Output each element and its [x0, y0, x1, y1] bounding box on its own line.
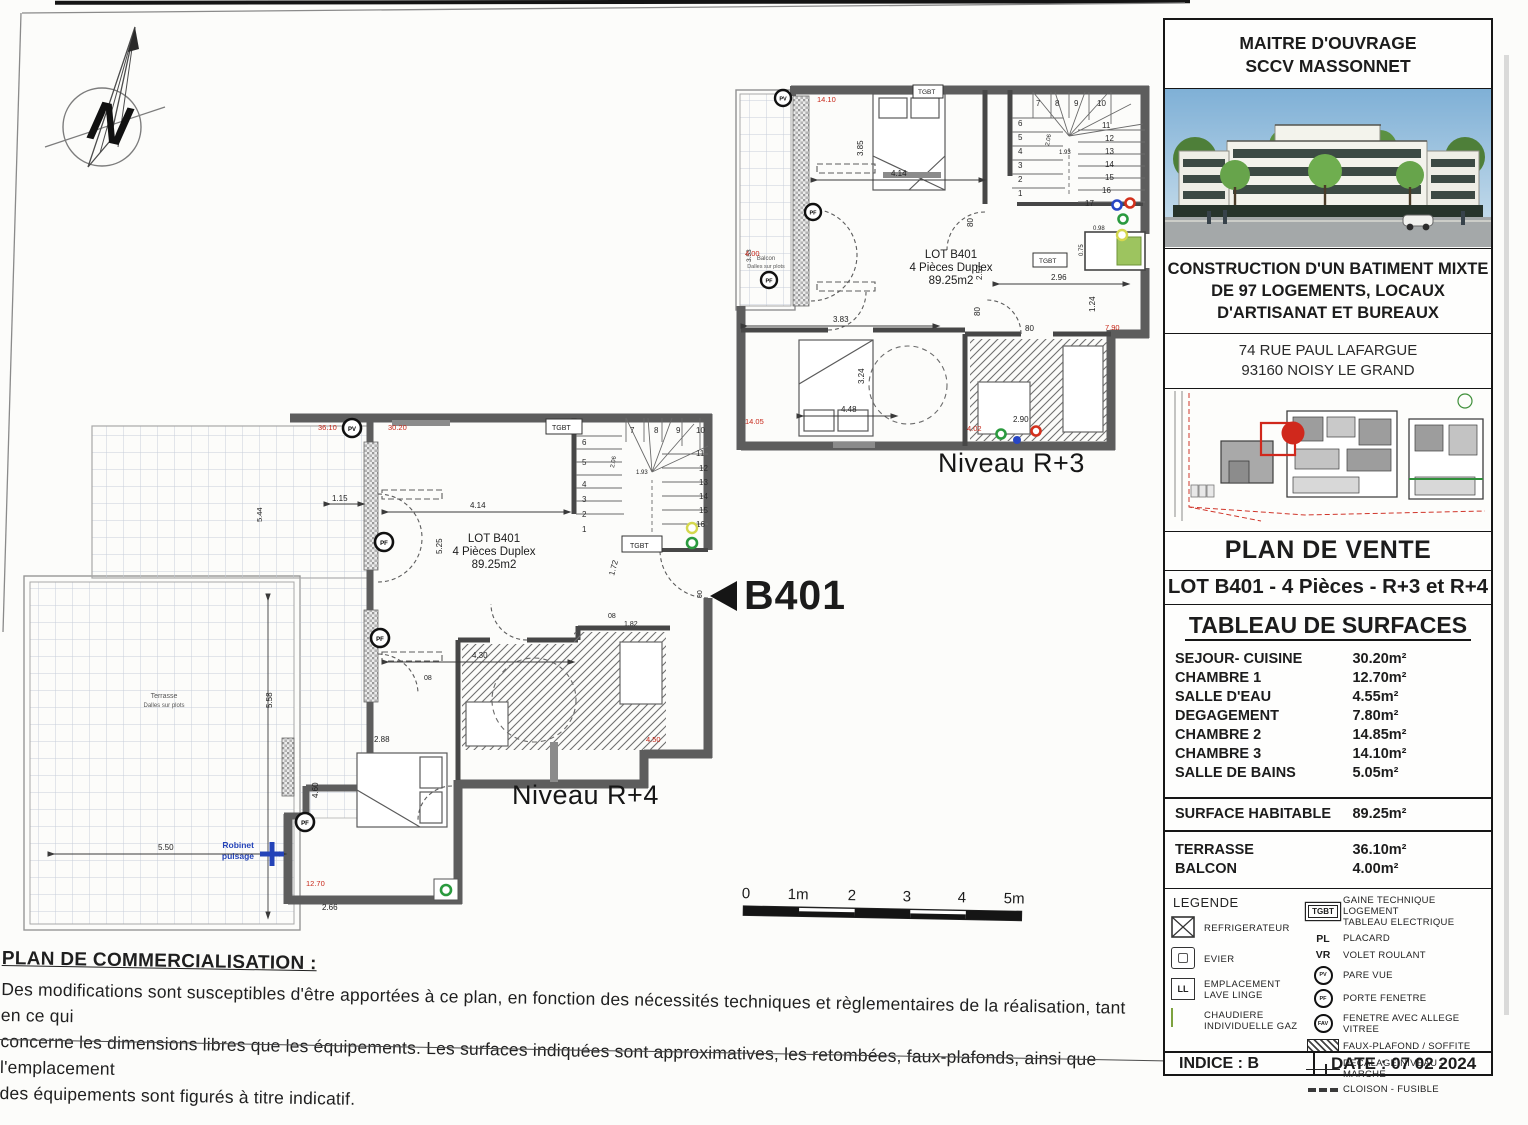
plan-de-vente-sheet: { "page": { "niveau_r3": "Niveau R+3", "… — [0, 0, 1528, 1080]
svg-text:08: 08 — [608, 613, 616, 620]
svg-text:12: 12 — [699, 464, 708, 473]
window-band — [793, 96, 809, 306]
svg-text:9: 9 — [1074, 99, 1079, 108]
svg-text:Dalles sur plots: Dalles sur plots — [747, 264, 785, 270]
svg-text:13: 13 — [699, 478, 708, 487]
svg-text:PV: PV — [779, 97, 787, 103]
svg-text:4: 4 — [1018, 147, 1023, 156]
legend-item-volet-roulant: VR VOLET ROULANT — [1303, 949, 1485, 961]
svg-text:14: 14 — [1105, 160, 1114, 169]
lot-highlight-dot — [1282, 422, 1305, 445]
svg-text:8: 8 — [654, 426, 659, 435]
table-row: CHAMBRE 112.70m² — [1175, 669, 1481, 688]
svg-text:4.14: 4.14 — [470, 501, 486, 510]
table-row: BALCON4.00m² — [1175, 860, 1481, 879]
svg-text:1.72: 1.72 — [607, 559, 620, 577]
table-row: SALLE D'EAU4.55m² — [1175, 688, 1481, 707]
svg-text:4.02: 4.02 — [967, 424, 982, 433]
legend: LEGENDE REFRIGERATEUR EVIER LL EMPLACEME… — [1165, 888, 1491, 1051]
svg-text:17: 17 — [1085, 199, 1094, 208]
tgbt-label: TGBT — [552, 425, 571, 432]
svg-text:7: 7 — [1036, 99, 1041, 108]
legend-item-evier: EVIER — [1171, 947, 1299, 971]
dash-symbol-icon — [1308, 1088, 1338, 1092]
tgbt-icon: TGBT — [1308, 905, 1338, 918]
svg-text:1m: 1m — [788, 886, 809, 903]
svg-text:15: 15 — [699, 506, 708, 515]
svg-text:5: 5 — [582, 458, 587, 467]
legend-item-cloison: CLOISON - FUSIBLE — [1303, 1084, 1485, 1095]
svg-text:1.24: 1.24 — [1088, 296, 1097, 312]
svg-text:80: 80 — [966, 218, 975, 227]
svg-text:14.10: 14.10 — [817, 95, 836, 104]
svg-text:PF: PF — [765, 279, 773, 285]
svg-text:80: 80 — [1025, 324, 1034, 333]
table-row: SALLE DE BAINS5.05m² — [1175, 764, 1481, 783]
svg-text:4 Pièces Duplex: 4 Pièces Duplex — [452, 546, 535, 558]
svg-text:4.14: 4.14 — [891, 169, 907, 178]
svg-text:1: 1 — [582, 525, 587, 534]
niveau-r3-label: Niveau R+3 — [938, 448, 1085, 479]
svg-text:12.70: 12.70 — [306, 879, 325, 888]
svg-text:16: 16 — [1102, 186, 1111, 195]
svg-text:2.57: 2.57 — [975, 264, 984, 280]
svg-text:14: 14 — [699, 492, 708, 501]
svg-text:1.82: 1.82 — [624, 621, 638, 628]
window-band — [364, 610, 378, 702]
svg-text:6: 6 — [582, 438, 587, 447]
commercialisation-note: PLAN DE COMMERCIALISATION : Des modifica… — [0, 948, 1142, 1125]
table-row: CHAMBRE 214.85m² — [1175, 726, 1481, 745]
svg-text:1.93: 1.93 — [636, 470, 648, 476]
surface-table-title: TABLEAU DE SURFACES — [1185, 612, 1471, 641]
svg-text:4.00: 4.00 — [745, 249, 760, 258]
tgbt-label: TGBT — [1039, 258, 1056, 265]
stair-numbers-r4: 12 34 56 78 910 1112 1314 1516 — [582, 426, 708, 534]
building-center — [1287, 411, 1397, 497]
svg-text:4: 4 — [958, 889, 967, 906]
boiler-icon — [1171, 1008, 1173, 1027]
svg-text:0.75: 0.75 — [1079, 244, 1085, 256]
unit-marker-label: B401 — [744, 572, 846, 619]
table-row: CHAMBRE 314.10m² — [1175, 745, 1481, 764]
tgbt-label: TGBT — [630, 543, 649, 550]
north-letter: N — [83, 88, 138, 159]
legend-item-refrigerateur: REFRIGERATEUR — [1171, 916, 1299, 940]
scale-labels: 0 1m 2 3 4 5m — [742, 885, 1025, 907]
svg-text:3: 3 — [1018, 161, 1023, 170]
svg-text:80: 80 — [973, 307, 982, 316]
bed-chambre3 — [799, 340, 873, 436]
project-line3: D'ARTISANAT ET BUREAUX — [1167, 302, 1489, 324]
svg-text:5.25: 5.25 — [435, 538, 444, 554]
svg-text:LOT B401: LOT B401 — [925, 249, 977, 261]
date-cell: DATE : 07 02 2024 — [1315, 1054, 1491, 1074]
bathtub — [620, 642, 662, 704]
svg-text:PF: PF — [376, 637, 384, 643]
svg-text:7: 7 — [630, 426, 635, 435]
svg-text:9: 9 — [676, 426, 681, 435]
svg-text:Dalles sur plots: Dalles sur plots — [143, 703, 184, 709]
svg-text:89.25m2: 89.25m2 — [472, 559, 517, 571]
svg-text:5.50: 5.50 — [158, 843, 174, 852]
svg-text:2: 2 — [582, 510, 587, 519]
svg-text:12: 12 — [1105, 134, 1114, 143]
north-compass-icon: N — [38, 20, 173, 185]
surface-table-header: TABLEAU DE SURFACES — [1165, 605, 1491, 642]
floor-plan-r3: 12 34 56 78 910 1112 1314 1516 17 TGBT T… — [733, 84, 1163, 459]
bed-chambre1 — [357, 753, 447, 827]
boiler-gaz — [1117, 237, 1141, 265]
svg-text:1: 1 — [1018, 189, 1023, 198]
svg-text:90: 90 — [697, 590, 704, 598]
hedge — [1173, 205, 1483, 217]
surface-table: SEJOUR- CUISINE30.20m² CHAMBRE 112.70m² … — [1165, 642, 1491, 787]
table-row: TERRASSE36.10m² — [1175, 841, 1481, 860]
svg-text:2.96: 2.96 — [1051, 273, 1067, 282]
legend-title: LEGENDE — [1173, 895, 1299, 910]
svg-text:3: 3 — [582, 495, 587, 504]
owner-line1: MAITRE D'OUVRAGE — [1169, 32, 1487, 55]
project-line2: DE 97 LOGEMENTS, LOCAUX — [1167, 280, 1489, 302]
stairs-r3 — [1012, 92, 1145, 202]
legend-item-tgbt: TGBT GAINE TECHNIQUE LOGEMENTTABLEAU ELE… — [1303, 895, 1485, 928]
building-east — [1409, 419, 1483, 499]
floor-plan-r4: 12 34 56 78 910 1112 1314 1516 TGBT TGBT… — [22, 402, 717, 932]
pl-symbol: PL — [1303, 933, 1343, 945]
svg-text:PF: PF — [380, 541, 388, 547]
indice-cell: INDICE : B — [1165, 1053, 1315, 1074]
washer-icon: LL — [1171, 978, 1195, 1000]
svg-text:11: 11 — [1102, 121, 1111, 130]
svg-text:2: 2 — [1018, 175, 1023, 184]
sink-icon — [1171, 947, 1195, 969]
svg-text:3.85: 3.85 — [856, 140, 865, 156]
scale-bar: 0 1m 2 3 4 5m — [735, 882, 1036, 949]
svg-text:LOT B401: LOT B401 — [468, 533, 520, 545]
table-row: SEJOUR- CUISINE30.20m² — [1175, 650, 1481, 669]
svg-text:PV: PV — [348, 427, 356, 433]
svg-text:5m: 5m — [1004, 890, 1025, 907]
svg-text:4: 4 — [582, 480, 587, 489]
refrigerator-icon — [1171, 916, 1197, 940]
parking-strip — [1191, 485, 1214, 497]
svg-text:2.88: 2.88 — [374, 735, 390, 744]
legend-item-lave-linge: LL EMPLACEMENTLAVE LINGE — [1171, 978, 1299, 1002]
svg-text:4.60: 4.60 — [311, 782, 320, 798]
project-description: CONSTRUCTION D'UN BATIMENT MIXTE DE 97 L… — [1165, 249, 1491, 334]
vr-symbol: VR — [1303, 949, 1343, 961]
legend-item-placard: PL PLACARD — [1303, 933, 1485, 945]
svg-text:36.10: 36.10 — [318, 423, 337, 432]
svg-text:6: 6 — [1018, 119, 1023, 128]
shower — [466, 702, 508, 746]
tgbt-label: TGBT — [918, 89, 935, 96]
turning-circle — [869, 346, 947, 424]
svg-text:PF: PF — [809, 211, 817, 217]
shower — [1063, 346, 1103, 432]
pf-icon: PF — [1314, 989, 1333, 1008]
placard-dashes — [817, 164, 875, 291]
svg-text:0: 0 — [742, 885, 751, 902]
placard-dashes — [382, 490, 442, 661]
svg-text:13: 13 — [1105, 147, 1114, 156]
legend-item-pare-vue: PV PARE VUE — [1303, 966, 1485, 985]
surface-habitable-row: SURFACE HABITABLE89.25m² — [1165, 797, 1491, 832]
svg-text:2.06: 2.06 — [1045, 133, 1053, 146]
scan-streak — [1504, 55, 1509, 1015]
project-address: 74 RUE PAUL LAFARGUE 93160 NOISY LE GRAN… — [1165, 334, 1491, 389]
svg-text:PF: PF — [301, 821, 309, 827]
svg-text:11: 11 — [696, 449, 705, 458]
legend-item-fenetre-allege: FAV FENETRE AVEC ALLEGE VITREE — [1303, 1013, 1485, 1035]
svg-text:10: 10 — [1097, 99, 1106, 108]
table-row: DEGAGEMENT7.80m² — [1175, 707, 1481, 726]
robinet-puisage-label: Robinet puisage — [222, 840, 254, 861]
svg-text:30.20: 30.20 — [388, 423, 407, 432]
plan-de-vente-title: PLAN DE VENTE — [1165, 532, 1491, 571]
building-rendering — [1165, 89, 1491, 249]
owner-line2: SCCV MASSONNET — [1169, 55, 1487, 78]
svg-text:15: 15 — [1105, 173, 1114, 182]
svg-text:3: 3 — [903, 888, 912, 905]
lot-title: LOT B401 - 4 Pièces - R+3 et R+4 — [1165, 571, 1491, 605]
svg-text:1.15: 1.15 — [332, 494, 348, 503]
svg-text:3.24: 3.24 — [857, 368, 866, 384]
exterior-surfaces: TERRASSE36.10m² BALCON4.00m² — [1165, 832, 1491, 888]
svg-text:2: 2 — [848, 887, 857, 904]
radiator — [833, 442, 875, 448]
step-symbol-icon — [1306, 1063, 1340, 1075]
svg-text:14.05: 14.05 — [745, 417, 764, 426]
legend-item-chaudiere: CHAUDIEREINDIVIDUELLE GAZ — [1171, 1009, 1299, 1033]
svg-text:7.90: 7.90 — [1105, 323, 1120, 332]
address-line2: 93160 NOISY LE GRAND — [1167, 361, 1489, 381]
svg-text:1.93: 1.93 — [1059, 150, 1071, 156]
svg-text:0.98: 0.98 — [1093, 226, 1105, 232]
svg-text:8: 8 — [1055, 99, 1060, 108]
fav-icon: FAV — [1314, 1014, 1333, 1033]
svg-text:5: 5 — [1018, 133, 1023, 142]
svg-text:4.48: 4.48 — [841, 405, 857, 414]
unit-marker-b401: B401 — [710, 572, 846, 619]
window-band — [282, 738, 294, 796]
svg-text:89.25m2: 89.25m2 — [929, 275, 974, 287]
svg-text:Robinet: Robinet — [222, 840, 254, 850]
svg-text:2.90: 2.90 — [1013, 415, 1029, 424]
svg-text:5.44: 5.44 — [255, 507, 264, 522]
svg-text:08: 08 — [424, 675, 432, 682]
project-line1: CONSTRUCTION D'UN BATIMENT MIXTE — [1167, 258, 1489, 280]
svg-text:2.66: 2.66 — [322, 903, 338, 912]
title-block: MAITRE D'OUVRAGE SCCV MASSONNET — [1163, 18, 1493, 1076]
niveau-r4-label: Niveau R+4 — [512, 780, 659, 811]
radiator — [550, 742, 558, 782]
address-line1: 74 RUE PAUL LAFARGUE — [1167, 341, 1489, 361]
svg-text:Terrasse: Terrasse — [151, 693, 178, 700]
svg-text:10: 10 — [696, 426, 705, 435]
site-plan — [1165, 389, 1491, 532]
svg-text:4.50: 4.50 — [646, 735, 661, 744]
lot-label-r4: LOT B401 4 Pièces Duplex 89.25m2 — [452, 533, 535, 571]
svg-text:5.58: 5.58 — [265, 692, 274, 708]
pv-icon: PV — [1314, 966, 1333, 985]
svg-text:2.06: 2.06 — [610, 455, 618, 468]
owner-block: MAITRE D'OUVRAGE SCCV MASSONNET — [1165, 20, 1491, 89]
svg-text:3.83: 3.83 — [833, 315, 849, 324]
bathtub — [978, 382, 1030, 434]
svg-text:4.30: 4.30 — [472, 651, 488, 660]
window-band — [364, 442, 378, 570]
legend-item-porte-fenetre: PF PORTE FENETRE — [1303, 989, 1485, 1008]
svg-text:puisage: puisage — [222, 851, 254, 861]
